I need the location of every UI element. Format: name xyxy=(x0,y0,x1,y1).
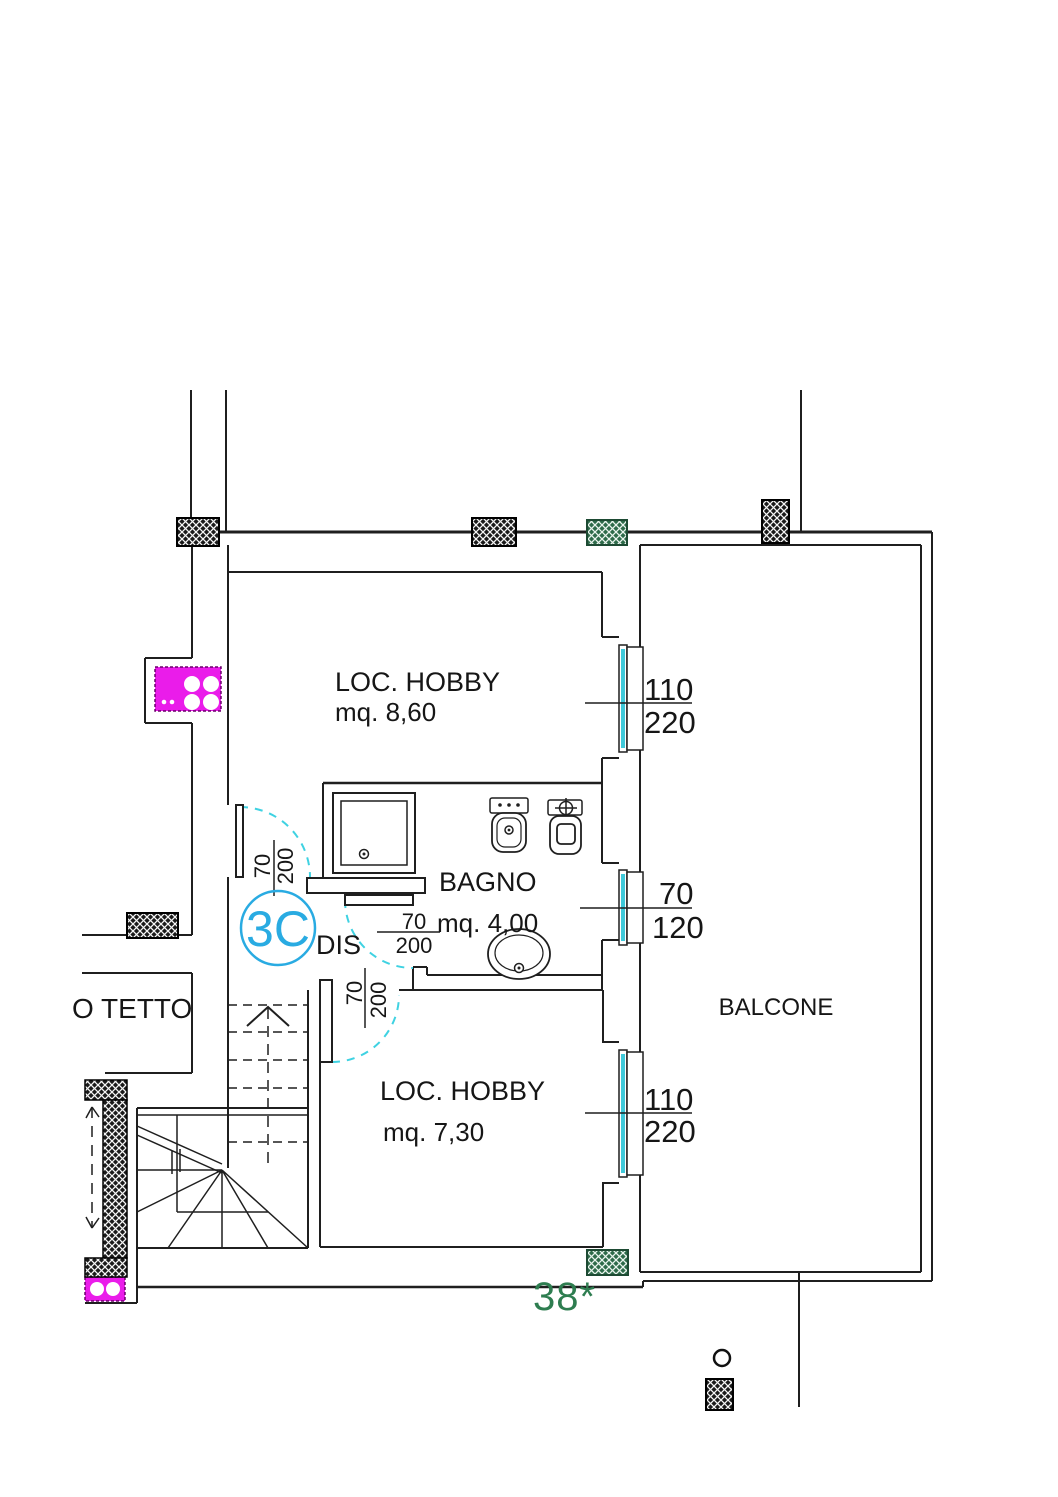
shower-drain-dot xyxy=(363,853,366,856)
pillar-hatch xyxy=(472,518,516,546)
bagno-shower-wall xyxy=(307,878,425,893)
staircase xyxy=(137,990,308,1248)
bidet xyxy=(490,798,528,852)
door-leaf-dis xyxy=(236,805,243,877)
window-upper xyxy=(619,645,643,752)
toilet xyxy=(548,798,582,854)
dim-door-hobby-w: 70 xyxy=(342,981,367,1005)
hatched-wall-strip xyxy=(103,1100,127,1258)
room2-name: LOC. HOBBY xyxy=(380,1076,545,1106)
dim-window-bagno-w: 70 xyxy=(659,876,693,911)
window-sill xyxy=(627,647,643,750)
hatched-wall-top xyxy=(85,1080,127,1100)
floor-plan-svg: LOC. HOBBY mq. 8,60 BAGNO mq. 4,00 LOC. … xyxy=(0,0,1058,1497)
bidet-drain-dot xyxy=(508,829,511,832)
sink-drain-dot xyxy=(518,967,521,970)
attic-label: O TETTO xyxy=(72,993,192,1024)
bagno-name: BAGNO xyxy=(439,867,537,897)
stair-winder-fan xyxy=(137,1170,308,1248)
balcone-label: BALCONE xyxy=(719,994,834,1021)
dim-door-bagno-h: 200 xyxy=(396,933,433,958)
dim-door-dis-h: 200 xyxy=(273,848,298,885)
dim-door-bagno-w: 70 xyxy=(402,909,426,934)
dim-window-upper-h: 220 xyxy=(644,705,696,740)
dim-window-lower-w: 110 xyxy=(644,1082,693,1117)
magenta-block xyxy=(85,1277,125,1301)
hatched-wall-bottom xyxy=(85,1258,127,1277)
pillars xyxy=(85,500,789,1410)
burner xyxy=(203,694,219,710)
bidet-dot xyxy=(507,803,511,807)
lot-note: 38* xyxy=(533,1275,596,1319)
pillar-hatch xyxy=(706,1379,733,1410)
burner xyxy=(184,694,200,710)
door-leaf-bagno xyxy=(345,895,413,905)
block-hole xyxy=(90,1282,104,1296)
block-hole xyxy=(106,1282,120,1296)
dim-window-bagno-h: 120 xyxy=(652,910,704,945)
bidet-dot xyxy=(516,803,520,807)
dim-door-dis-w: 70 xyxy=(250,854,275,878)
shower-inner xyxy=(341,801,407,865)
stair-handrail xyxy=(137,1126,222,1174)
cooktop xyxy=(155,667,221,711)
unit-badge-text: 3C xyxy=(246,901,310,957)
slope-arrow xyxy=(86,1107,99,1228)
dim-window-upper-w: 110 xyxy=(644,672,693,707)
dim-door-hobby-h: 200 xyxy=(366,982,391,1019)
pillar-hatch xyxy=(127,913,178,938)
bidet-dot xyxy=(498,803,502,807)
wall-left-upper xyxy=(145,532,192,935)
pillar-hatch-green xyxy=(587,520,627,545)
shower xyxy=(333,793,415,873)
door-leaf-hobby xyxy=(320,980,332,1062)
drain-marker-circle xyxy=(714,1350,730,1366)
burner xyxy=(184,676,200,692)
bagno-right-wall xyxy=(602,783,619,990)
dis-label: DIS xyxy=(316,930,361,960)
toilet-seat xyxy=(557,824,575,844)
room1-area: mq. 8,60 xyxy=(335,697,436,727)
knob-dot xyxy=(170,700,175,705)
pillar-hatch xyxy=(762,500,789,543)
room1-name: LOC. HOBBY xyxy=(335,667,500,697)
pillar-hatch-green xyxy=(587,1250,628,1275)
unit-badge: 3C xyxy=(241,891,315,965)
knob-dot xyxy=(162,700,167,705)
bagno-area: mq. 4,00 xyxy=(437,908,538,938)
dim-window-lower-h: 220 xyxy=(644,1114,696,1149)
room2-area: mq. 7,30 xyxy=(383,1117,484,1147)
pillar-hatch xyxy=(177,518,219,546)
burner xyxy=(203,676,219,692)
floor-plan-sheet: LOC. HOBBY mq. 8,60 BAGNO mq. 4,00 LOC. … xyxy=(0,0,1058,1497)
